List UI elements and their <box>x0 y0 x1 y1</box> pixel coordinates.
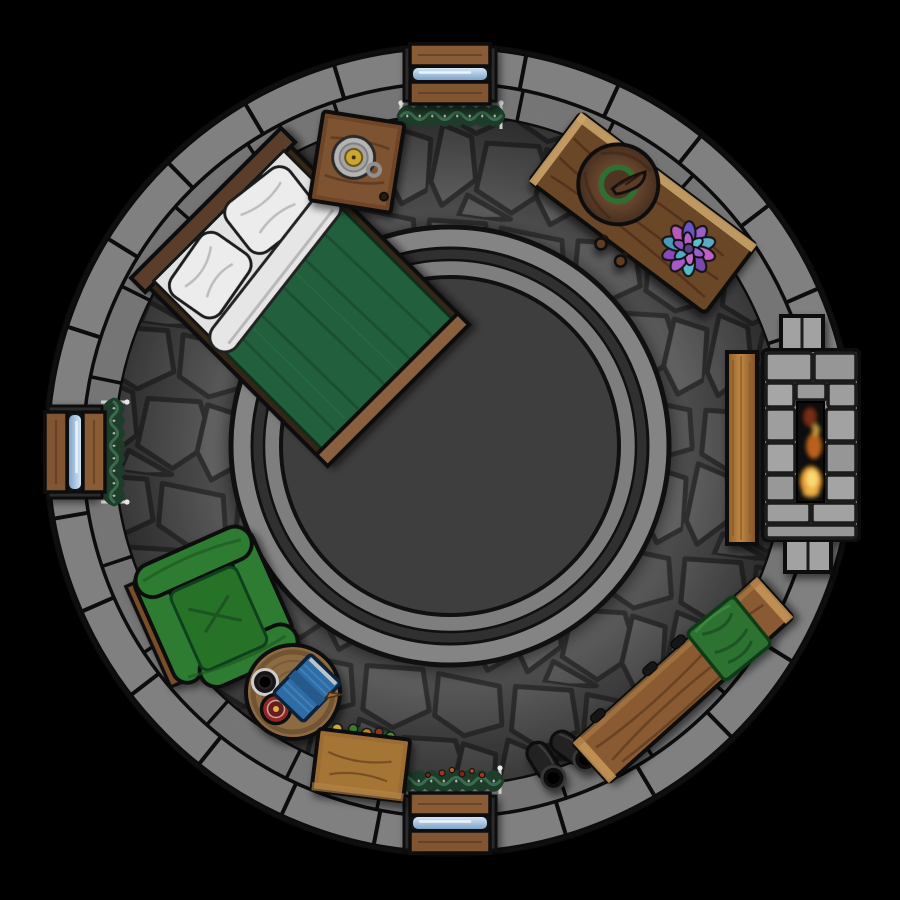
flame-icon <box>802 488 820 498</box>
drawer-knob <box>379 192 388 201</box>
berry-icon <box>459 771 465 777</box>
flame-icon <box>803 407 817 427</box>
fireplace-bench-plank <box>727 352 757 544</box>
berry-icon <box>426 773 431 778</box>
window-left <box>45 406 105 498</box>
fireplace <box>727 316 859 572</box>
berry-icon <box>470 769 475 774</box>
berry-icon <box>439 770 445 776</box>
flame-icon <box>806 433 822 459</box>
tower-room-map <box>0 0 900 900</box>
flame-icon <box>806 470 818 488</box>
flame-icon <box>812 424 820 436</box>
berry-icon <box>479 772 485 778</box>
window-bottom <box>404 793 496 853</box>
window-top <box>404 44 496 104</box>
nightstand <box>309 111 404 213</box>
berry-icon <box>449 767 454 772</box>
